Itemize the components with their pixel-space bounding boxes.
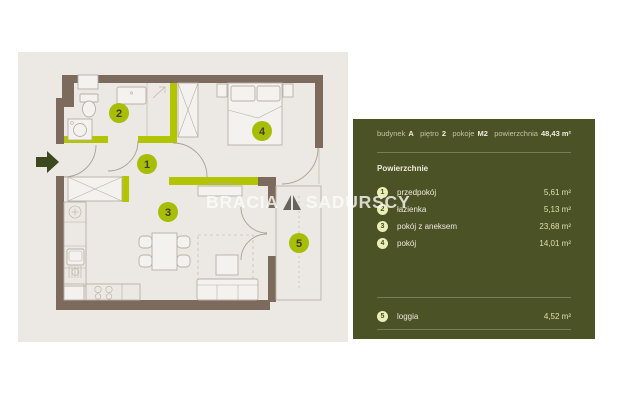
ottoman (216, 255, 238, 275)
apartment-info-panel: budynek A piętro 2 pokoje M2 powierzchni… (353, 119, 595, 339)
header-rooms: pokoje M2 (452, 129, 488, 138)
bedroom-door (173, 143, 207, 177)
divider (377, 297, 571, 298)
couch (197, 279, 258, 300)
floor-value: 2 (442, 129, 446, 138)
floorplan-drawing: 1 2 3 4 5 (18, 52, 348, 342)
loggia-door-leaf (241, 207, 267, 233)
pillow (257, 86, 280, 101)
room-marker-2: 2 (109, 103, 129, 123)
kitchen-counter (86, 284, 140, 300)
pillow (231, 86, 255, 101)
extra-room-list: 5 loggia 4,52 m² (377, 308, 571, 325)
divider (377, 152, 571, 153)
tv-stand (198, 186, 242, 196)
room-row-3: 3 pokój z aneksem 23,68 m² (377, 218, 571, 235)
listing-floorplan-page: { "watermark": { "brand_left": "BRACIA",… (0, 0, 620, 400)
room-area: 4,52 m² (544, 312, 571, 321)
floor-label: piętro (420, 129, 439, 138)
rooms-value: M2 (477, 129, 487, 138)
room-name: łazienka (397, 205, 426, 214)
room-number-badge: 4 (377, 238, 388, 249)
room-row-4: 4 pokój 14,01 m² (377, 235, 571, 252)
room-number-badge: 3 (377, 221, 388, 232)
loggia-door-leaf (241, 234, 267, 260)
header-building: budynek A (377, 129, 414, 138)
room-row-2: 2 łazienka 5,13 m² (377, 201, 571, 218)
living-room-furniture (139, 183, 258, 300)
bedroom-wardrobe (178, 83, 198, 137)
chair (139, 255, 152, 267)
room-name: przedpokój (397, 188, 436, 197)
section-title: Powierzchnie (377, 164, 428, 173)
room-name: loggia (397, 312, 418, 321)
nightstand (217, 84, 227, 97)
chair (177, 255, 190, 267)
room-marker-label: 3 (165, 207, 171, 219)
rooms-label: pokoje (452, 129, 474, 138)
bathroom-door (108, 141, 138, 171)
room-marker-1: 1 (137, 154, 157, 174)
room-area: 23,68 m² (539, 222, 571, 231)
room-area: 5,13 m² (544, 205, 571, 214)
room-marker-3: 3 (158, 202, 178, 222)
total-area-label: powierzchnia (494, 129, 538, 138)
stove-burner (95, 286, 101, 292)
stove-burner (95, 294, 101, 300)
wall-recess-top (78, 75, 98, 89)
chair (177, 236, 190, 248)
room-list: 1 przedpokój 5,61 m² 2 łazienka 5,13 m² … (377, 184, 571, 252)
room-row-1: 1 przedpokój 5,61 m² (377, 184, 571, 201)
chair (139, 236, 152, 248)
toilet-bowl (83, 101, 96, 117)
room-row-5: 5 loggia 4,52 m² (377, 308, 571, 325)
floorplan-canvas: 1 2 3 4 5 (18, 52, 348, 342)
bathroom-sink (117, 87, 146, 104)
room-marker-label: 1 (144, 159, 150, 171)
room-area: 5,61 m² (544, 188, 571, 197)
room-number-badge: 2 (377, 204, 388, 215)
entrance-arrow-icon (36, 151, 59, 173)
stove-burner (106, 286, 112, 292)
building-label: budynek (377, 129, 405, 138)
building-value: A (408, 129, 413, 138)
header-total-area: powierzchnia 48,43 m² (494, 129, 571, 138)
panel-header: budynek A piętro 2 pokoje M2 powierzchni… (377, 129, 571, 138)
room-number-badge: 5 (377, 311, 388, 322)
room-marker-label: 4 (259, 126, 266, 138)
total-area-value: 48,43 m² (541, 129, 571, 138)
divider (377, 329, 571, 330)
header-floor: piętro 2 (420, 129, 446, 138)
room-marker-4: 4 (252, 121, 272, 141)
stove-burner (106, 294, 112, 300)
hall-wardrobe (68, 177, 122, 201)
room-area: 14,01 m² (539, 239, 571, 248)
bedroom-balcony-door (282, 148, 318, 184)
room-name: pokój (397, 239, 416, 248)
room-number-badge: 1 (377, 187, 388, 198)
room-marker-label: 5 (296, 238, 302, 250)
nightstand (283, 84, 293, 97)
entrance-door (64, 145, 96, 177)
room-name: pokój z aneksem (397, 222, 457, 231)
shaft-arrow-icon (153, 87, 165, 98)
room-marker-5: 5 (289, 233, 309, 253)
dining-table (152, 233, 177, 270)
room-marker-label: 2 (116, 108, 122, 120)
